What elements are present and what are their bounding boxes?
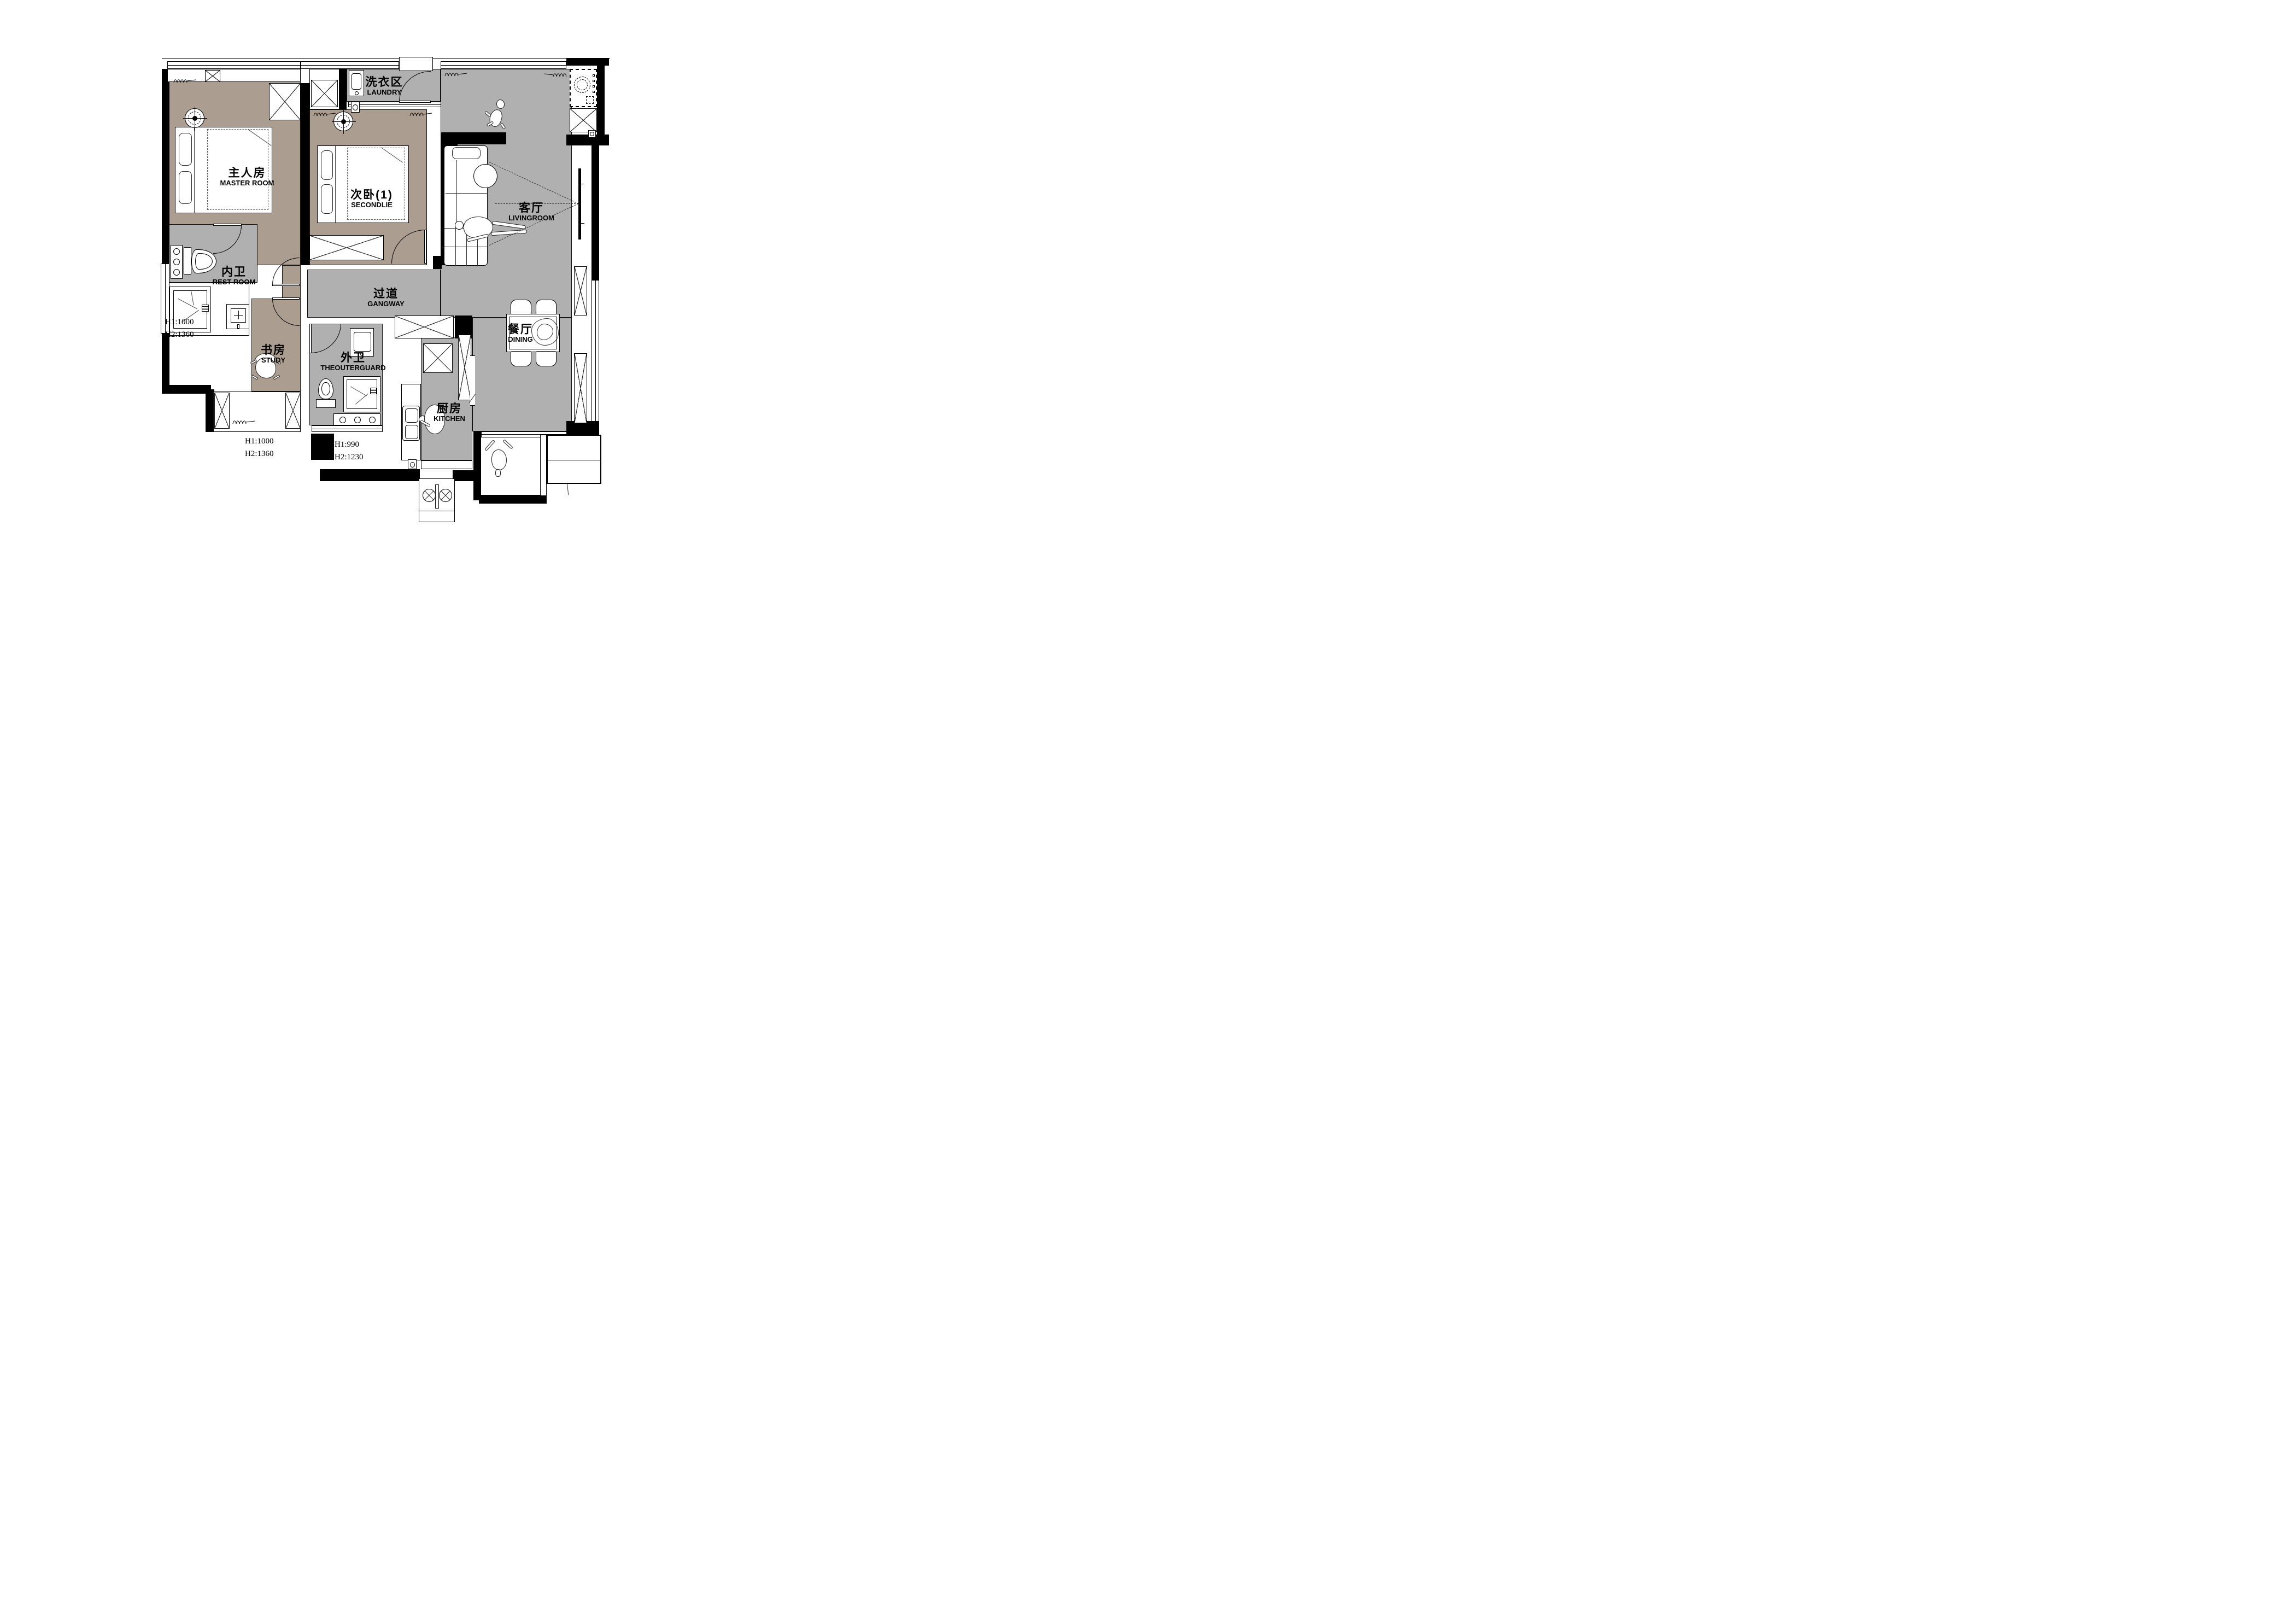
master-pillow-2 <box>179 171 192 204</box>
wall-left-lower <box>162 334 169 388</box>
dining-right-window <box>591 280 599 423</box>
bowl-inner <box>195 253 213 270</box>
heater-icon <box>173 78 197 84</box>
label-study-en: STUDY <box>261 357 286 364</box>
master-door-leaf <box>272 284 300 286</box>
master-bed-line <box>194 127 195 213</box>
fan-axis-v <box>343 110 344 134</box>
annotation-line: H1:990 <box>335 439 364 451</box>
laundry-basin <box>352 73 361 90</box>
outerguard-shower <box>343 376 380 412</box>
drain-circle <box>353 104 358 110</box>
label-kitchen-en: KITCHEN <box>434 415 465 423</box>
tv-mount-bottom <box>581 223 584 224</box>
person-head <box>455 221 464 230</box>
study-bay-cabinet-left <box>214 393 230 429</box>
dining-chair-tl <box>511 300 531 315</box>
annotation-study-bay: H1:1000 H2:1360 <box>245 435 274 460</box>
label-dining-zh: 餐厅 <box>508 324 533 336</box>
label-outerguard-en: THEOUTERGUARD <box>320 364 385 372</box>
label-second-en: SECONDLIE <box>350 201 393 209</box>
washer-drum-inner <box>577 79 588 90</box>
living-top-window <box>441 61 566 69</box>
kitchen-tall-cabinet <box>458 335 471 400</box>
side-table <box>473 164 497 188</box>
heater-icon <box>409 111 433 118</box>
annotation-line: H1:1000 <box>165 316 194 329</box>
burner-right <box>439 489 452 502</box>
master-top-window <box>167 61 301 69</box>
vanity-basin <box>354 332 371 352</box>
laundry-sink <box>349 70 364 96</box>
outerguard-door-leaf <box>309 324 312 353</box>
laundry-corner-cabinet <box>570 108 597 132</box>
master-pillow-1 <box>179 133 192 166</box>
label-laundry-en: LAUNDRY <box>366 89 403 96</box>
wall-right-living <box>591 137 599 280</box>
wall-topright-right <box>597 58 605 139</box>
person-leg <box>495 469 501 477</box>
second-bed <box>317 145 409 223</box>
kitchen-drain-box <box>408 459 417 469</box>
label-living-en: LIVINGROOM <box>508 214 554 222</box>
outerguard-toilet-bowl <box>318 378 333 399</box>
shower-inner <box>347 379 377 409</box>
mid-top-window <box>301 61 399 69</box>
dining-chair-br <box>536 351 557 366</box>
second-bedroom-wardrobe <box>309 235 384 260</box>
heater-icon <box>232 419 256 425</box>
sink-basin-1 <box>405 408 418 423</box>
label-rest-zh: 内卫 <box>213 266 256 278</box>
label-gangway-zh: 过道 <box>367 288 404 300</box>
washer-btn-4 <box>593 91 595 93</box>
annotation-left-bay: H1:1000 H2:1360 <box>165 316 194 341</box>
person-arm-left <box>484 440 495 451</box>
label-study-zh: 书房 <box>261 344 286 357</box>
person-walking <box>484 437 514 479</box>
entry-step <box>399 57 433 71</box>
label-outerguard-zh: 外卫 <box>320 352 385 364</box>
fan-axis-h <box>332 121 356 122</box>
corner-drain-box <box>588 130 596 138</box>
label-rest-en: REST ROOM <box>213 278 256 286</box>
study-door-leaf <box>272 297 300 300</box>
label-master-zh: 主人房 <box>220 167 274 179</box>
fan-axis-h <box>183 118 207 119</box>
wall-gangway-corner <box>433 256 442 269</box>
landing-step-line <box>548 460 600 460</box>
washer-door <box>586 96 594 104</box>
annotation-line: H2:1360 <box>165 329 194 341</box>
knob-3 <box>369 417 376 423</box>
chair-leg-3 <box>251 375 258 379</box>
kitchen-counter-bottom <box>421 460 472 469</box>
wall-left-upper <box>162 77 169 264</box>
heater-icon <box>444 71 468 78</box>
washer-btn-1 <box>593 74 595 77</box>
second-closet-cabinet <box>311 80 338 107</box>
heater-icon <box>543 72 567 78</box>
restroom-door-leaf <box>213 224 242 226</box>
sink-basin-2 <box>405 425 418 439</box>
label-outerguard: 外卫 THEOUTERGUARD <box>320 352 385 372</box>
drain-circle <box>410 462 415 468</box>
second-door-leaf <box>424 230 426 264</box>
heater-icon <box>313 111 337 118</box>
sofa-split-h <box>446 193 487 194</box>
floor-plan: 主人房 MASTER ROOM 次卧(1) SECONDLIE 洗衣区 LAUN… <box>0 0 765 541</box>
dog-figure <box>483 100 509 131</box>
porch-landing <box>547 435 601 484</box>
annotation-outer-bay: H1:990 H2:1230 <box>335 439 364 463</box>
vanity-spout <box>237 324 239 329</box>
dining-chair-bl <box>511 351 531 366</box>
kitchen-fridge <box>423 343 453 373</box>
label-master-room: 主人房 MASTER ROOM <box>220 167 274 187</box>
stove-front-line <box>419 511 454 511</box>
label-rest-room: 内卫 REST ROOM <box>213 266 256 286</box>
master-top-cabinet-icon <box>205 70 220 82</box>
gangway-shoe-cabinet <box>395 316 454 338</box>
drain-circle <box>590 132 594 136</box>
dining-right-cabinet-top <box>574 266 587 316</box>
bowl-inner <box>321 382 330 395</box>
entry-door-leaf <box>399 101 431 103</box>
label-kitchen: 厨房 KITCHEN <box>434 403 465 423</box>
wall-porch-bottom <box>479 495 547 504</box>
outerguard-bay-window <box>312 425 383 432</box>
master-ceiling-fan <box>185 108 204 128</box>
top-boundary-line <box>162 58 610 59</box>
label-living-zh: 客厅 <box>508 202 554 214</box>
label-study: 书房 STUDY <box>261 344 286 364</box>
label-gangway: 过道 GANGWAY <box>367 288 404 308</box>
dining-centerpiece <box>531 318 560 347</box>
wall-master-second <box>301 83 309 265</box>
annotation-line: H1:1000 <box>245 435 274 448</box>
label-master-en: MASTER ROOM <box>220 179 274 187</box>
knob-3 <box>173 269 180 276</box>
dog-head <box>495 99 505 110</box>
laundry-floor-drain <box>351 102 360 113</box>
second-pillow-1 <box>321 150 333 180</box>
restroom-heater-unit <box>171 245 183 279</box>
shower-head <box>202 305 209 312</box>
label-gangway-en: GANGWAY <box>367 300 404 308</box>
washing-machine <box>570 69 597 107</box>
dog-leg-1 <box>484 110 491 117</box>
stove-center-bar <box>435 484 439 509</box>
wall-topright-bottom <box>566 135 609 145</box>
vanity-cross-v <box>238 311 239 319</box>
label-living-room: 客厅 LIVINGROOM <box>508 202 554 222</box>
knob-1 <box>339 417 346 423</box>
dining-right-cabinet-bottom <box>574 353 587 423</box>
label-dining-en: DINING <box>508 336 533 343</box>
label-second-bedroom: 次卧(1) SECONDLIE <box>350 189 393 209</box>
label-laundry: 洗衣区 LAUNDRY <box>366 77 403 96</box>
knob-2 <box>173 259 180 265</box>
knob-2 <box>354 417 361 423</box>
knob-1 <box>173 248 180 255</box>
sofa-head-cushion <box>452 147 481 159</box>
wall-outer-bay-block <box>311 434 334 460</box>
master-corner-wardrobe <box>269 83 301 120</box>
second-bed-line <box>335 146 336 223</box>
label-laundry-zh: 洗衣区 <box>366 77 403 89</box>
wall-laundry-pillar <box>339 69 347 109</box>
fan-axis-v <box>195 107 195 131</box>
annotation-line: H2:1230 <box>335 451 364 464</box>
washer-btn-2 <box>593 80 595 82</box>
annotation-line: H2:1360 <box>245 448 274 460</box>
stove-bay <box>419 478 455 522</box>
dining-chair-tr <box>536 300 557 315</box>
tv <box>578 168 581 239</box>
tv-mount-top <box>581 184 584 184</box>
label-second-zh: 次卧(1) <box>350 189 393 201</box>
burner-left <box>423 489 436 502</box>
wall-bottom-left <box>162 385 211 394</box>
person-arm-right <box>502 439 513 449</box>
kitchen-sink <box>402 406 420 441</box>
wall-porch-left <box>473 431 481 500</box>
shower-head <box>370 388 377 394</box>
second-pillow-2 <box>321 184 333 214</box>
wall-bottom-center <box>320 469 420 481</box>
label-kitchen-zh: 厨房 <box>434 403 465 415</box>
laundry-faucet <box>355 91 359 95</box>
restroom-toilet-tank <box>184 247 191 274</box>
outerguard-toilet-tank <box>316 399 336 408</box>
outerguard-counter <box>333 413 380 425</box>
washer-btn-3 <box>593 85 595 87</box>
study-bay-cabinet-right <box>285 393 301 429</box>
restroom-vanity <box>226 304 249 329</box>
person-torso <box>491 449 507 470</box>
porch-door-leaf <box>540 435 547 496</box>
dog-tail <box>500 122 506 130</box>
label-dining: 餐厅 DINING <box>508 324 533 343</box>
